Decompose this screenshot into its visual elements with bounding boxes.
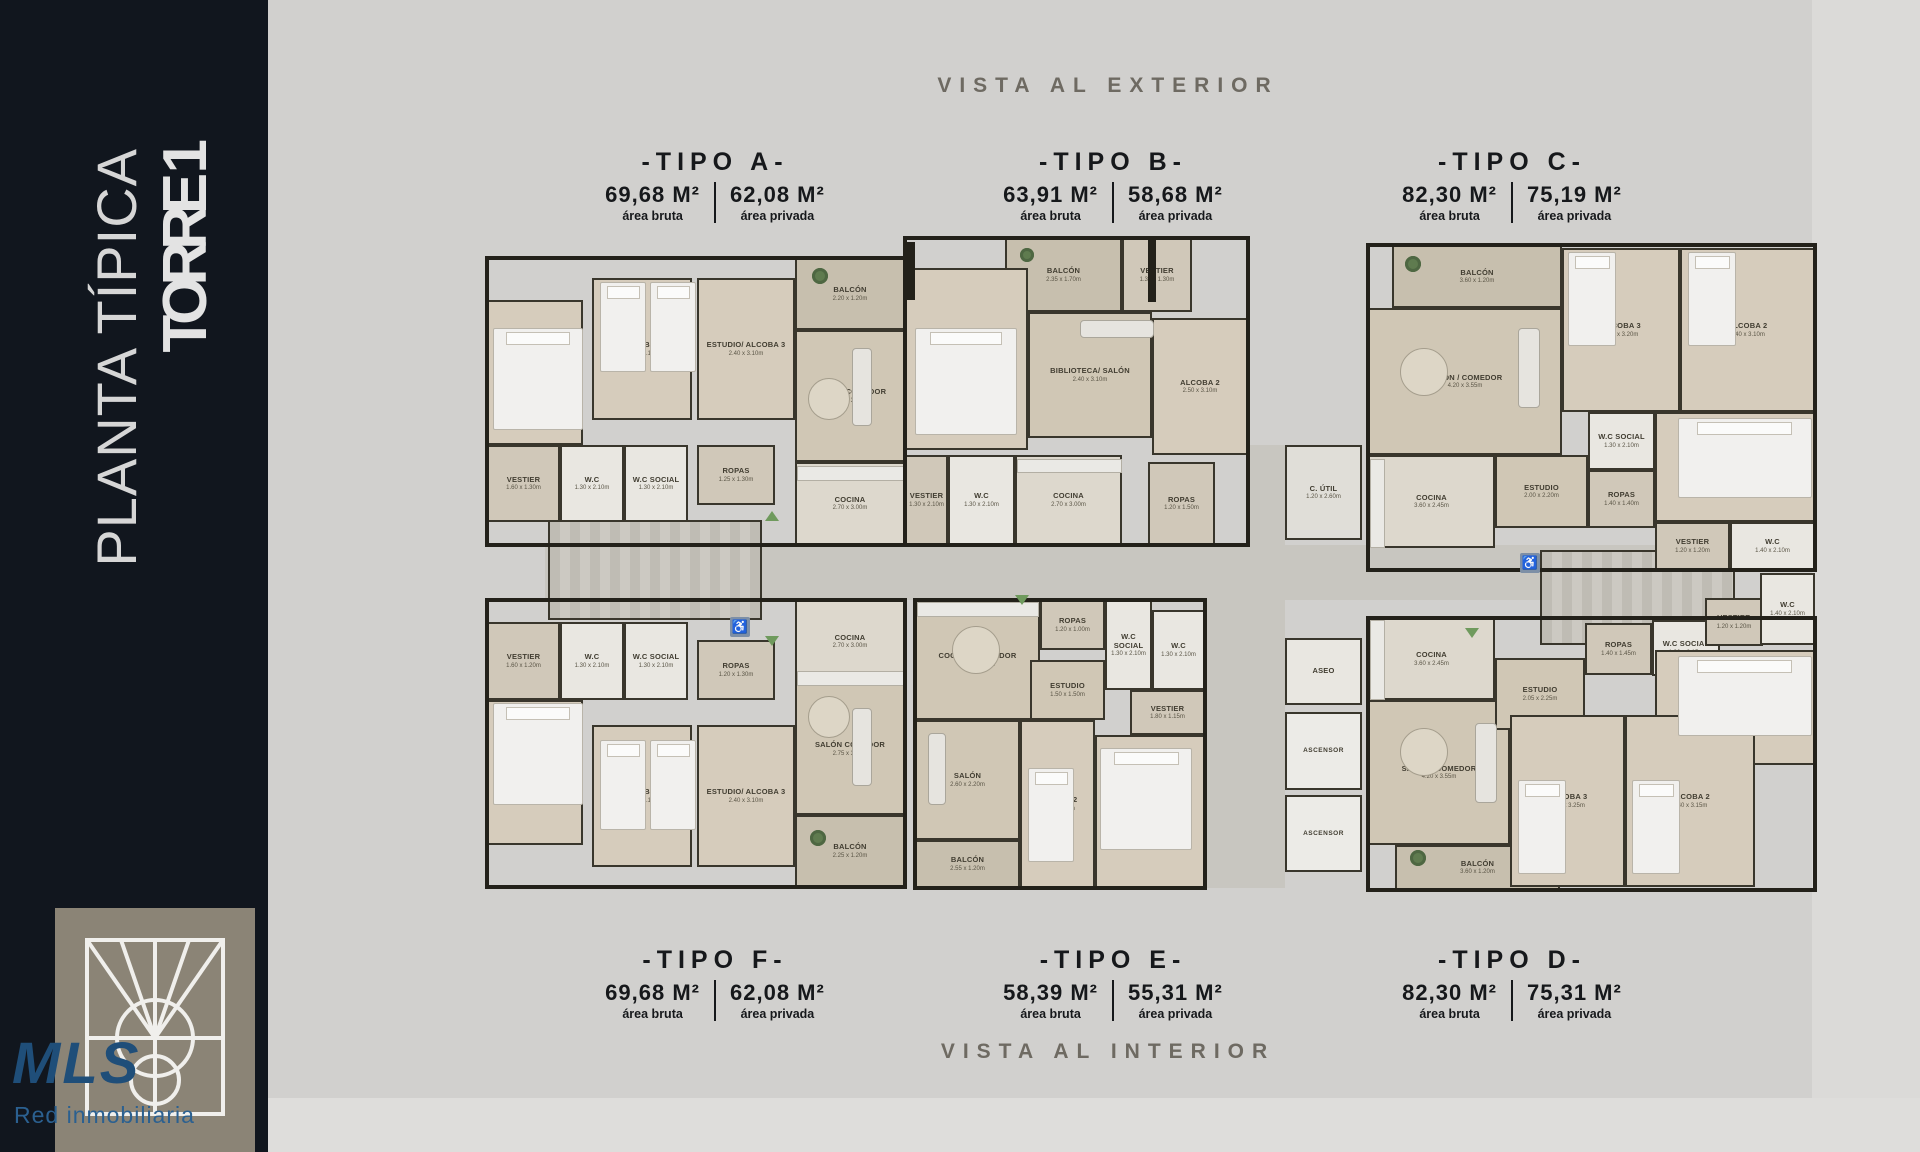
wheelchair-icon: ♿ [1520, 553, 1540, 573]
room-label: W.C SOCIAL [633, 653, 680, 662]
page: PLANTA TÍPICA TORRE 1 MLS Red inmobi [0, 0, 1920, 1152]
type-d-areas: 82,30 M² área bruta 75,31 M² área privad… [1388, 980, 1636, 1021]
table-graphic [808, 378, 850, 420]
room-d-ropas: ROPAS1.40 x 1.45m [1585, 623, 1652, 675]
room-dimensions: 1.50 x 1.50m [1050, 692, 1085, 698]
room-label: ROPAS [1608, 491, 1635, 500]
room-dimensions: 2.70 x 3.00m [833, 643, 868, 649]
room-dimensions: 2.05 x 2.25m [1523, 696, 1558, 702]
room-dimensions: 1.20 x 1.20m [1675, 548, 1710, 554]
plant-graphic [1410, 850, 1426, 866]
entry-arrow-icon [1015, 595, 1029, 605]
tower-title: TORRE 1 [150, 148, 221, 353]
room-f-estudio-alcoba-3: ESTUDIO/ ALCOBA 32.40 x 3.10m [697, 725, 795, 867]
counter-graphic [797, 466, 905, 481]
room-b-w-c: W.C1.30 x 2.10m [948, 455, 1015, 545]
type-f-name: -TIPO F- [642, 946, 787, 975]
room-dimensions: 1.40 x 2.10m [1770, 611, 1805, 617]
room-c-ropas: ROPAS1.40 x 1.40m [1588, 470, 1655, 528]
room-c-balc-n: BALCÓN3.60 x 1.20m [1392, 245, 1562, 308]
room-label: VESTIER [1140, 267, 1174, 276]
plant-graphic [1405, 256, 1421, 272]
room-label: C. ÚTIL [1310, 485, 1338, 494]
bed-graphic [493, 328, 583, 430]
room-label: W.C [1765, 538, 1780, 547]
type-b-card: -TIPO B- 63,91 M² área bruta 58,68 M² ár… [953, 148, 1273, 223]
brand-logo: MLS [12, 1030, 140, 1097]
room-label: BALCÓN [1461, 860, 1494, 869]
room-label: BALCÓN [1460, 269, 1493, 278]
room-label: W.C SOCIAL [633, 476, 680, 485]
room-dimensions: 1.60 x 1.20m [506, 663, 541, 669]
private-area: 62,08 M² área privada [716, 182, 839, 223]
room-dimensions: 1.30 x 2.10m [575, 485, 610, 491]
type-b-areas: 63,91 M² área bruta 58,68 M² área privad… [989, 182, 1237, 223]
room-f-sal-n-comedor: SALÓN COMEDOR2.75 x 3.00m [795, 683, 905, 815]
table-graphic [1400, 728, 1448, 776]
room-label: BIBLIOTECA/ SALÓN [1050, 367, 1130, 376]
room-dimensions: 2.20 x 1.20m [833, 296, 868, 302]
room-dimensions: 2.40 x 3.10m [1073, 377, 1108, 383]
room-a-estudio-alcoba-3: ESTUDIO/ ALCOBA 32.40 x 3.10m [697, 278, 795, 420]
room-dimensions: 1.30 x 2.10m [575, 663, 610, 669]
wall-pillar [1148, 240, 1156, 302]
sofa-graphic [852, 348, 872, 426]
room-c-cocina: COCINA3.60 x 2.45m [1368, 455, 1495, 548]
room-dimensions: 1.20 x 1.30m [719, 672, 754, 678]
sofa-graphic [852, 708, 872, 786]
room-f-balc-n: BALCÓN2.25 x 1.20m [795, 815, 905, 887]
room-dimensions: 2.40 x 3.10m [729, 798, 764, 804]
room-label: COCINA [835, 634, 866, 643]
private-area: 55,31 M² área privada [1114, 980, 1237, 1021]
type-d-card: -TIPO D- 82,30 M² área bruta 75,31 M² ár… [1352, 946, 1672, 1021]
room-label: W.C [974, 492, 989, 501]
room-dimensions: 1.25 x 1.30m [719, 477, 754, 483]
bed-graphic [1100, 748, 1192, 850]
room-dimensions: 3.60 x 2.45m [1414, 661, 1449, 667]
page-edge-right [1812, 0, 1920, 1152]
bed-graphic [1678, 418, 1812, 498]
room-label: BALCÓN [951, 856, 984, 865]
entry-arrow-icon [1465, 628, 1479, 638]
room-dimensions: 2.70 x 3.00m [833, 505, 868, 511]
room-f-vestier: VESTIER1.60 x 1.20m [487, 622, 560, 700]
entry-arrow-icon [765, 636, 779, 646]
bed-graphic [1688, 252, 1736, 346]
counter-graphic [1370, 620, 1385, 700]
room-e-vestier: VESTIER1.80 x 1.15m [1130, 690, 1205, 735]
room-com-n-c-til: C. ÚTIL1.20 x 2.60m [1285, 445, 1362, 540]
room-dimensions: 2.35 x 1.70m [1046, 277, 1081, 283]
plan-title: PLANTA TÍPICA [84, 148, 149, 567]
bed-graphic [1568, 252, 1616, 346]
room-dimensions: 1.30 x 2.10m [909, 502, 944, 508]
type-a-name: -TIPO A- [641, 148, 788, 177]
room-label: VESTIER [507, 653, 541, 662]
counter-graphic [1370, 459, 1385, 548]
plant-graphic [812, 268, 828, 284]
bed-graphic [493, 703, 583, 805]
room-label: BALCÓN [833, 286, 866, 295]
room-label: W.C SOCIAL [1598, 433, 1645, 442]
room-label: VESTIER [1717, 614, 1751, 623]
bed-graphic [1028, 768, 1074, 862]
bed-graphic [600, 740, 646, 830]
gross-area: 58,39 M² área bruta [989, 980, 1112, 1021]
room-label: ESTUDIO [1050, 682, 1085, 691]
room-d-w-c: W.C1.40 x 2.10m [1760, 573, 1815, 645]
room-c-estudio: ESTUDIO2.00 x 2.20m [1495, 455, 1588, 528]
type-c-areas: 82,30 M² área bruta 75,19 M² área privad… [1388, 182, 1636, 223]
counter-graphic [1017, 459, 1122, 473]
room-label: VESTIER [1151, 705, 1185, 714]
room-e-estudio: ESTUDIO1.50 x 1.50m [1030, 660, 1105, 720]
room-dimensions: 1.20 x 2.60m [1306, 494, 1341, 500]
type-e-name: -TIPO E- [1040, 946, 1187, 975]
floor-plan: ♿ ♿ BALCÓN2.20 x 1.20mALCOBA PPAL2.80 x … [460, 228, 1815, 895]
room-b-vestier: VESTIER1.35 x 1.30m [1122, 238, 1192, 312]
room-label: SALÓN COMEDOR [815, 741, 885, 750]
bed-graphic [650, 282, 696, 372]
room-label: ASCENSOR [1303, 747, 1344, 754]
room-dimensions: 2.60 x 2.20m [950, 782, 985, 788]
room-label: ROPAS [722, 662, 749, 671]
gross-area: 82,30 M² área bruta [1388, 182, 1511, 223]
room-a-ropas: ROPAS1.25 x 1.30m [697, 445, 775, 505]
room-dimensions: 1.30 x 2.10m [1604, 443, 1639, 449]
room-dimensions: 2.55 x 1.20m [950, 866, 985, 872]
wheelchair-icon: ♿ [730, 617, 750, 637]
room-label: SALÓN [954, 772, 981, 781]
type-a-card: -TIPO A- 69,68 M² área bruta 62,08 M² ár… [555, 148, 875, 223]
room-label: W.C [1780, 601, 1795, 610]
room-e-ropas: ROPAS1.20 x 1.00m [1040, 600, 1105, 650]
room-label: BALCÓN [1047, 267, 1080, 276]
room-dimensions: 1.60 x 1.30m [506, 485, 541, 491]
room-dimensions: 3.60 x 1.20m [1460, 278, 1495, 284]
room-label: ESTUDIO/ ALCOBA 3 [707, 788, 786, 797]
bed-graphic [1518, 780, 1566, 874]
room-dimensions: 1.30 x 2.10m [1161, 652, 1196, 658]
room-e-balc-n: BALCÓN2.55 x 1.20m [915, 840, 1020, 888]
sofa-graphic [928, 733, 946, 805]
room-b-ropas: ROPAS1.20 x 1.50m [1148, 462, 1215, 545]
bed-graphic [1678, 656, 1812, 736]
room-label: VESTIER [1676, 538, 1710, 547]
room-dimensions: 4.20 x 3.55m [1448, 383, 1483, 389]
bed-graphic [1632, 780, 1680, 874]
room-label: VESTIER [507, 476, 541, 485]
room-dimensions: 2.25 x 1.20m [833, 853, 868, 859]
private-area: 75,19 M² área privada [1513, 182, 1636, 223]
stairwell-left [548, 520, 762, 620]
room-dimensions: 1.30 x 2.10m [639, 663, 674, 669]
room-label: W.C [585, 653, 600, 662]
room-a-w-c: W.C1.30 x 2.10m [560, 445, 624, 522]
counter-graphic [797, 671, 905, 686]
room-label: COCINA [1416, 651, 1447, 660]
gross-area: 82,30 M² área bruta [1388, 980, 1511, 1021]
room-label: ESTUDIO [1523, 686, 1558, 695]
room-label: ASEO [1312, 667, 1334, 676]
private-area: 75,31 M² área privada [1513, 980, 1636, 1021]
room-dimensions: 3.60 x 2.45m [1414, 503, 1449, 509]
room-label: ESTUDIO [1524, 484, 1559, 493]
lobby-corridor [1205, 600, 1285, 888]
room-dimensions: 2.40 x 3.10m [729, 351, 764, 357]
room-label: W.C [1171, 642, 1186, 651]
sofa-graphic [1475, 723, 1497, 803]
sofa-graphic [1080, 320, 1154, 338]
type-a-areas: 69,68 M² área bruta 62,08 M² área privad… [591, 182, 839, 223]
room-a-balc-n: BALCÓN2.20 x 1.20m [795, 258, 905, 330]
bed-graphic [600, 282, 646, 372]
room-label: ROPAS [1168, 496, 1195, 505]
room-dimensions: 1.20 x 1.00m [1055, 627, 1090, 633]
room-label: VESTIER [910, 492, 944, 501]
room-dimensions: 1.40 x 2.10m [1755, 548, 1790, 554]
sidebar: PLANTA TÍPICA TORRE 1 MLS Red inmobi [0, 0, 268, 1152]
corridor-stub [1250, 445, 1285, 600]
room-label: ESTUDIO/ ALCOBA 3 [707, 341, 786, 350]
room-e-w-c: W.C1.30 x 2.10m [1152, 610, 1205, 690]
room-f-ropas: ROPAS1.20 x 1.30m [697, 640, 775, 700]
type-e-card: -TIPO E- 58,39 M² área bruta 55,31 M² ár… [953, 946, 1273, 1021]
sofa-graphic [1518, 328, 1540, 408]
room-label: COCINA [835, 496, 866, 505]
room-label: COCINA [1416, 494, 1447, 503]
brand-subtitle: Red inmobiliaria [14, 1102, 195, 1129]
bed-graphic [650, 740, 696, 830]
room-dimensions: 1.30 x 2.10m [1111, 651, 1146, 657]
interior-view-label: VISTA AL INTERIOR [808, 1040, 1408, 1064]
room-dimensions: 1.30 x 2.10m [964, 502, 999, 508]
room-f-w-c-social: W.C SOCIAL1.30 x 2.10m [624, 622, 688, 700]
wall-pillar [903, 242, 915, 300]
type-b-name: -TIPO B- [1039, 148, 1187, 177]
room-d-vestier: VESTIER1.20 x 1.20m [1705, 598, 1763, 646]
type-f-areas: 69,68 M² área bruta 62,08 M² área privad… [591, 980, 839, 1021]
page-edge-bottom [268, 1098, 1920, 1152]
gross-area: 63,91 M² área bruta [989, 182, 1112, 223]
plant-graphic [810, 830, 826, 846]
bed-graphic [915, 328, 1017, 435]
room-dimensions: 1.35 x 1.30m [1140, 277, 1175, 283]
room-c-w-c: W.C1.40 x 2.10m [1730, 522, 1815, 570]
room-label: W.C [585, 476, 600, 485]
type-f-card: -TIPO F- 69,68 M² área bruta 62,08 M² ár… [555, 946, 875, 1021]
plant-graphic [1020, 248, 1034, 262]
table-graphic [808, 696, 850, 738]
room-dimensions: 1.20 x 1.50m [1164, 505, 1199, 511]
room-label: ALCOBA 2 [1180, 379, 1220, 388]
gross-area: 69,68 M² área bruta [591, 182, 714, 223]
room-label: W.C SOCIAL [1108, 633, 1149, 650]
private-area: 62,08 M² área privada [716, 980, 839, 1021]
room-dimensions: 1.20 x 1.20m [1717, 624, 1752, 630]
room-label: BALCÓN [833, 843, 866, 852]
room-b-alcoba-2: ALCOBA 22.50 x 3.10m [1152, 318, 1248, 455]
type-d-name: -TIPO D- [1438, 946, 1586, 975]
room-label: ROPAS [1605, 641, 1632, 650]
room-e-w-c-social: W.C SOCIAL1.30 x 2.10m [1105, 600, 1152, 690]
room-a-vestier: VESTIER1.60 x 1.30m [487, 445, 560, 522]
entry-arrow-icon [765, 511, 779, 521]
room-com-n-ascensor: ASCENSOR [1285, 795, 1362, 872]
type-c-name: -TIPO C- [1438, 148, 1586, 177]
private-area: 58,68 M² área privada [1114, 182, 1237, 223]
room-c-vestier: VESTIER1.20 x 1.20m [1655, 522, 1730, 570]
room-dimensions: 1.30 x 2.10m [639, 485, 674, 491]
table-graphic [1400, 348, 1448, 396]
room-dimensions: 2.00 x 2.20m [1524, 493, 1559, 499]
room-dimensions: 1.40 x 1.40m [1604, 501, 1639, 507]
gross-area: 69,68 M² área bruta [591, 980, 714, 1021]
room-label: W.C SOCIAL [1663, 640, 1710, 649]
type-c-card: -TIPO C- 82,30 M² área bruta 75,19 M² ár… [1352, 148, 1672, 223]
room-c-w-c-social: W.C SOCIAL1.30 x 2.10m [1588, 412, 1655, 470]
room-b-vestier: VESTIER1.30 x 2.10m [905, 455, 948, 545]
room-com-n-ascensor: ASCENSOR [1285, 712, 1362, 790]
type-e-areas: 58,39 M² área bruta 55,31 M² área privad… [989, 980, 1237, 1021]
room-dimensions: 2.70 x 3.00m [1051, 502, 1086, 508]
room-dimensions: 2.50 x 3.10m [1183, 388, 1218, 394]
exterior-view-label: VISTA AL EXTERIOR [808, 74, 1408, 98]
room-label: ASCENSOR [1303, 830, 1344, 837]
room-f-w-c: W.C1.30 x 2.10m [560, 622, 624, 700]
room-com-n-aseo: ASEO [1285, 638, 1362, 705]
room-label: COCINA [1053, 492, 1084, 501]
room-label: ROPAS [1059, 617, 1086, 626]
table-graphic [952, 626, 1000, 674]
room-a-w-c-social: W.C SOCIAL1.30 x 2.10m [624, 445, 688, 522]
room-dimensions: 3.60 x 1.20m [1460, 869, 1495, 875]
room-dimensions: 1.80 x 1.15m [1150, 714, 1185, 720]
room-dimensions: 1.40 x 1.45m [1601, 651, 1636, 657]
room-label: ROPAS [722, 467, 749, 476]
